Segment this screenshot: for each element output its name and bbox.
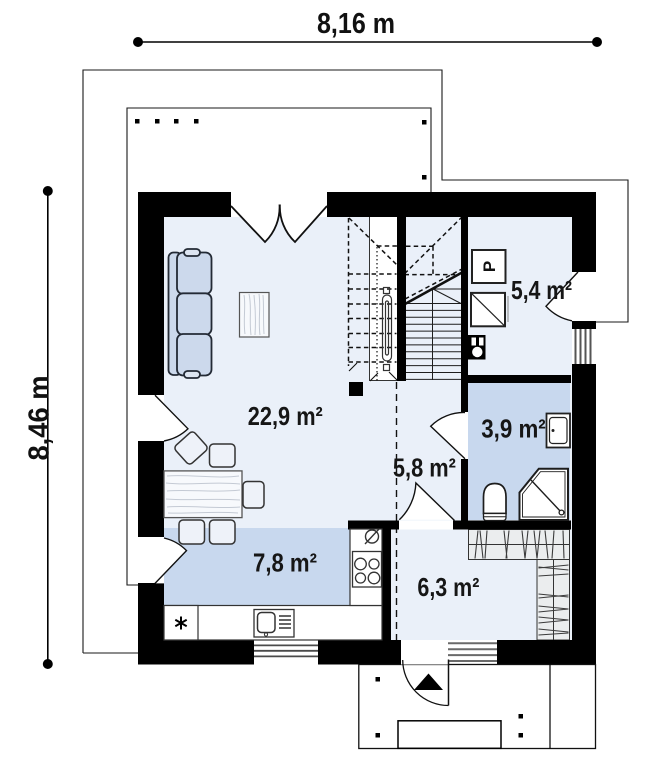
svg-text:P: P xyxy=(480,261,499,272)
svg-text:5,4 m²: 5,4 m² xyxy=(511,275,572,305)
svg-text:7,8 m²: 7,8 m² xyxy=(253,548,317,578)
svg-text:8,16 m: 8,16 m xyxy=(317,8,395,40)
svg-text:8,46 m: 8,46 m xyxy=(24,376,56,461)
svg-text:22,9 m²: 22,9 m² xyxy=(248,401,323,431)
svg-text:6,3 m²: 6,3 m² xyxy=(417,572,479,602)
svg-text:3,9 m²: 3,9 m² xyxy=(481,413,546,443)
svg-text:5,8 m²: 5,8 m² xyxy=(393,452,456,482)
